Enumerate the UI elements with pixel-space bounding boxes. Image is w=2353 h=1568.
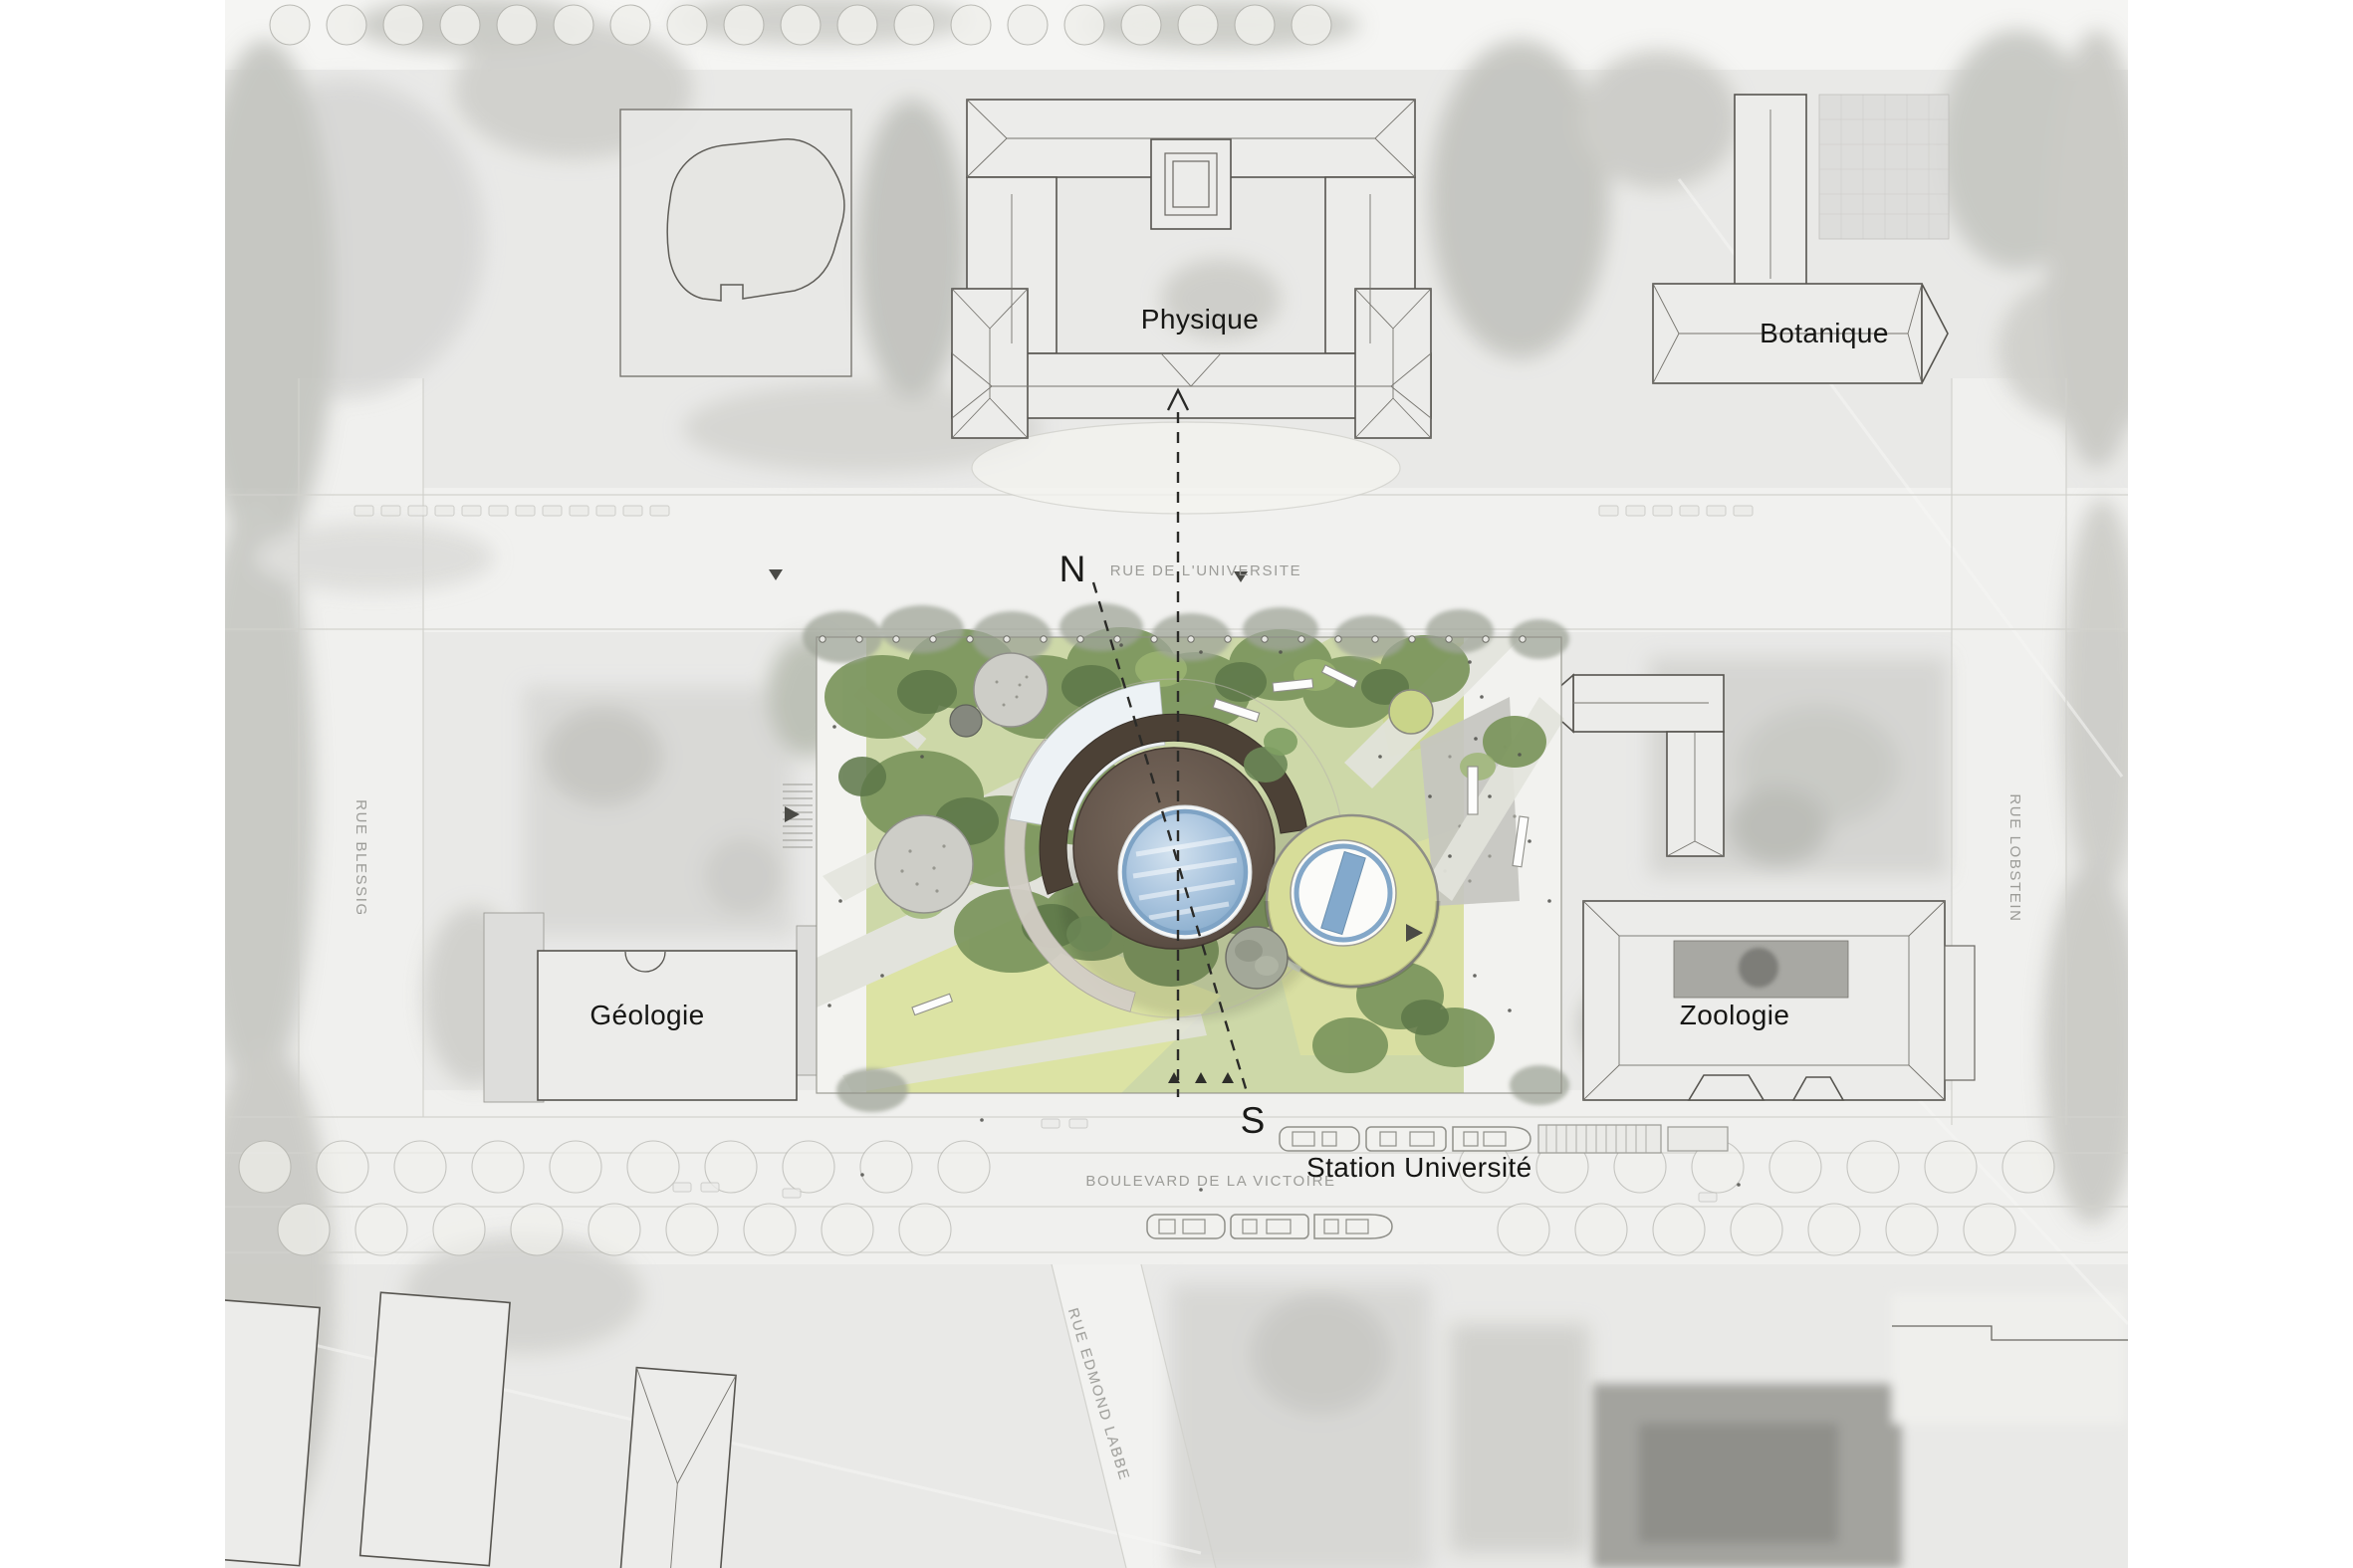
building-label-zoologie: Zoologie bbox=[1680, 1000, 1790, 1030]
auditorium-circle bbox=[1267, 815, 1438, 987]
street-label-lobstein: RUE LOBSTEIN bbox=[2006, 793, 2023, 922]
tram-platform bbox=[1538, 1125, 1728, 1153]
physique-forecourt-oval bbox=[972, 422, 1400, 514]
street-label-victoire: BOULEVARD DE LA VICTOIRE bbox=[1085, 1173, 1335, 1190]
campus-site-plan-svg: N S RUE DE L'UNIVERSITE BOULEVARD DE LA … bbox=[225, 0, 2128, 1568]
site-plan-page: N S RUE DE L'UNIVERSITE BOULEVARD DE LA … bbox=[0, 0, 2353, 1568]
dome-skylight bbox=[1124, 811, 1246, 933]
building-label-physique: Physique bbox=[1141, 304, 1259, 335]
section-marker-south: S bbox=[1241, 1100, 1266, 1141]
street-label-universite: RUE DE L'UNIVERSITE bbox=[1110, 562, 1301, 579]
tree-circle bbox=[1226, 927, 1288, 989]
building-amphitheatre-plot bbox=[620, 110, 851, 376]
building-label-botanique: Botanique bbox=[1760, 318, 1889, 348]
tram-vehicle bbox=[1147, 1215, 1392, 1238]
building-label-geologie: Géologie bbox=[589, 1000, 704, 1030]
street-label-blessig: RUE BLESSIG bbox=[353, 799, 369, 917]
section-marker-north: N bbox=[1059, 549, 1086, 589]
campus-map: N S RUE DE L'UNIVERSITE BOULEVARD DE LA … bbox=[225, 0, 2128, 1568]
station-label: Station Université bbox=[1306, 1152, 1532, 1183]
tram-vehicle bbox=[1280, 1127, 1530, 1151]
